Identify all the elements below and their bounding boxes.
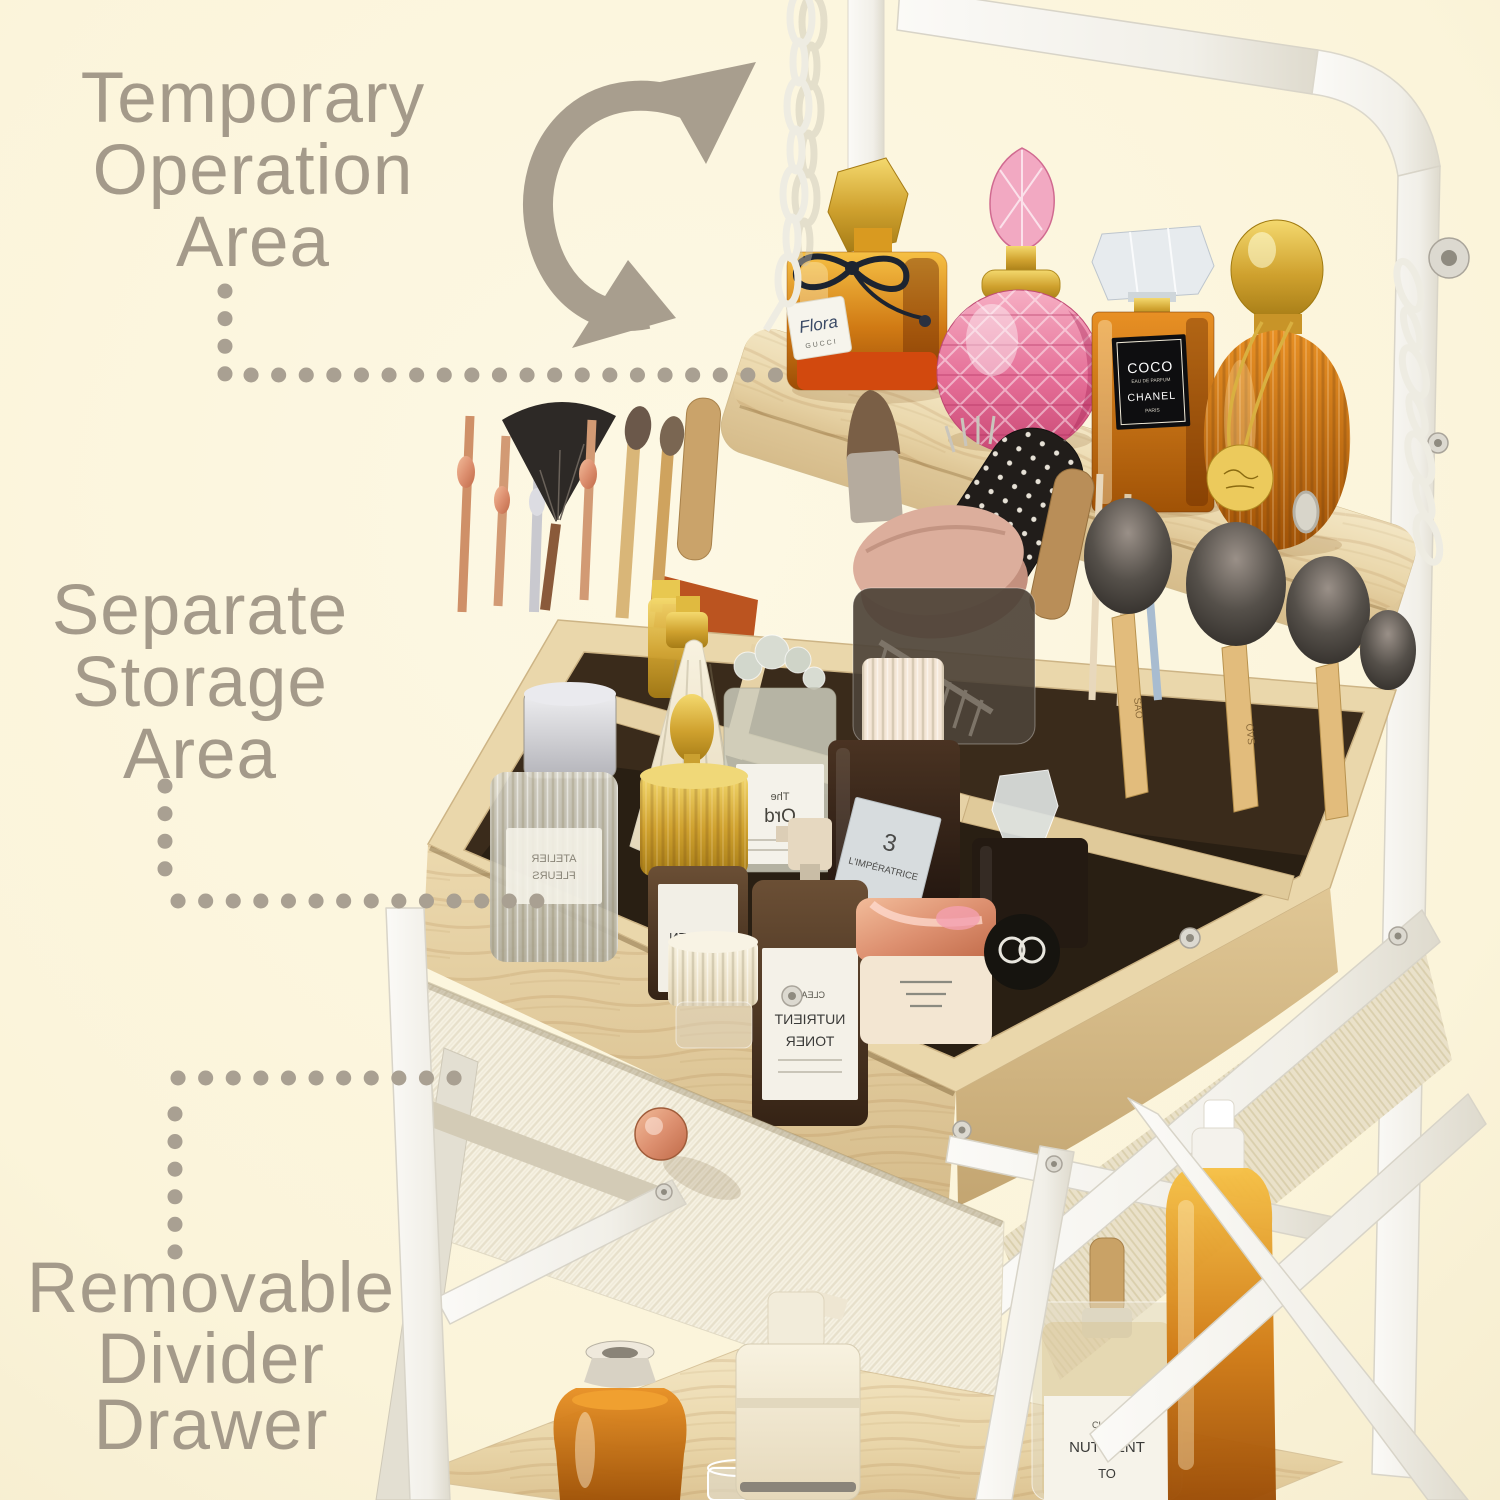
bottle-body	[736, 1344, 860, 1500]
svg-text:NUTRIENT: NUTRIENT	[774, 1011, 845, 1027]
label-line: Removable	[27, 1249, 395, 1328]
label-line: Separate	[52, 571, 348, 650]
decanter-neck	[584, 1358, 656, 1388]
svg-text:PARIS: PARIS	[1145, 408, 1161, 415]
label-line: Area	[176, 203, 330, 282]
svg-text:CHANEL: CHANEL	[1127, 390, 1176, 405]
svg-text:ATELIER: ATELIER	[531, 853, 576, 865]
crystal-cap	[1092, 226, 1214, 300]
brush-marking: OVS	[1243, 723, 1256, 745]
brush-tuft	[1084, 498, 1172, 614]
bottle-label	[506, 828, 602, 904]
svg-text:The: The	[771, 791, 790, 803]
label-line: Drawer	[94, 1386, 329, 1465]
label-line: Area	[123, 715, 277, 794]
infographic-stage: Flora GUCCI COCO EAU DE PARFUM CHANEL PA…	[0, 0, 1500, 1500]
cream-ribbed-jar	[668, 931, 758, 1048]
black-cc-compact	[984, 914, 1060, 990]
brush-tuft	[1286, 556, 1370, 664]
amber-rect-perfume: COCO EAU DE PARFUM CHANEL PARIS	[1092, 226, 1214, 512]
brush-tuft	[1360, 610, 1416, 690]
label-line: Storage	[72, 643, 328, 722]
pink-rose-gold-jar	[856, 898, 996, 1044]
svg-text:FLEURS: FLEURS	[532, 870, 575, 882]
jar-body	[860, 956, 992, 1044]
brush-tuft	[1186, 522, 1286, 646]
gold-tag	[1207, 445, 1273, 511]
coco-label: COCO EAU DE PARFUM CHANEL PARIS	[1112, 334, 1191, 430]
dropper-bulb	[670, 694, 714, 762]
gold-dome-cap	[1231, 220, 1323, 320]
perfume-base-band	[797, 352, 937, 390]
svg-text:COCO: COCO	[1127, 358, 1174, 376]
brush-marking: SAO	[1131, 697, 1144, 719]
label-line: Operation	[93, 131, 414, 210]
label-line: Temporary	[81, 59, 425, 138]
svg-text:TO: TO	[1098, 1466, 1116, 1481]
spray-pump	[788, 818, 832, 870]
flora-label: Flora GUCCI	[786, 296, 852, 360]
svg-text:TONER: TONER	[786, 1033, 835, 1049]
drawer-knob[interactable]	[635, 1108, 687, 1160]
product-infographic: Flora GUCCI COCO EAU DE PARFUM CHANEL PA…	[0, 0, 1500, 1500]
chain-clasp	[1294, 492, 1318, 532]
